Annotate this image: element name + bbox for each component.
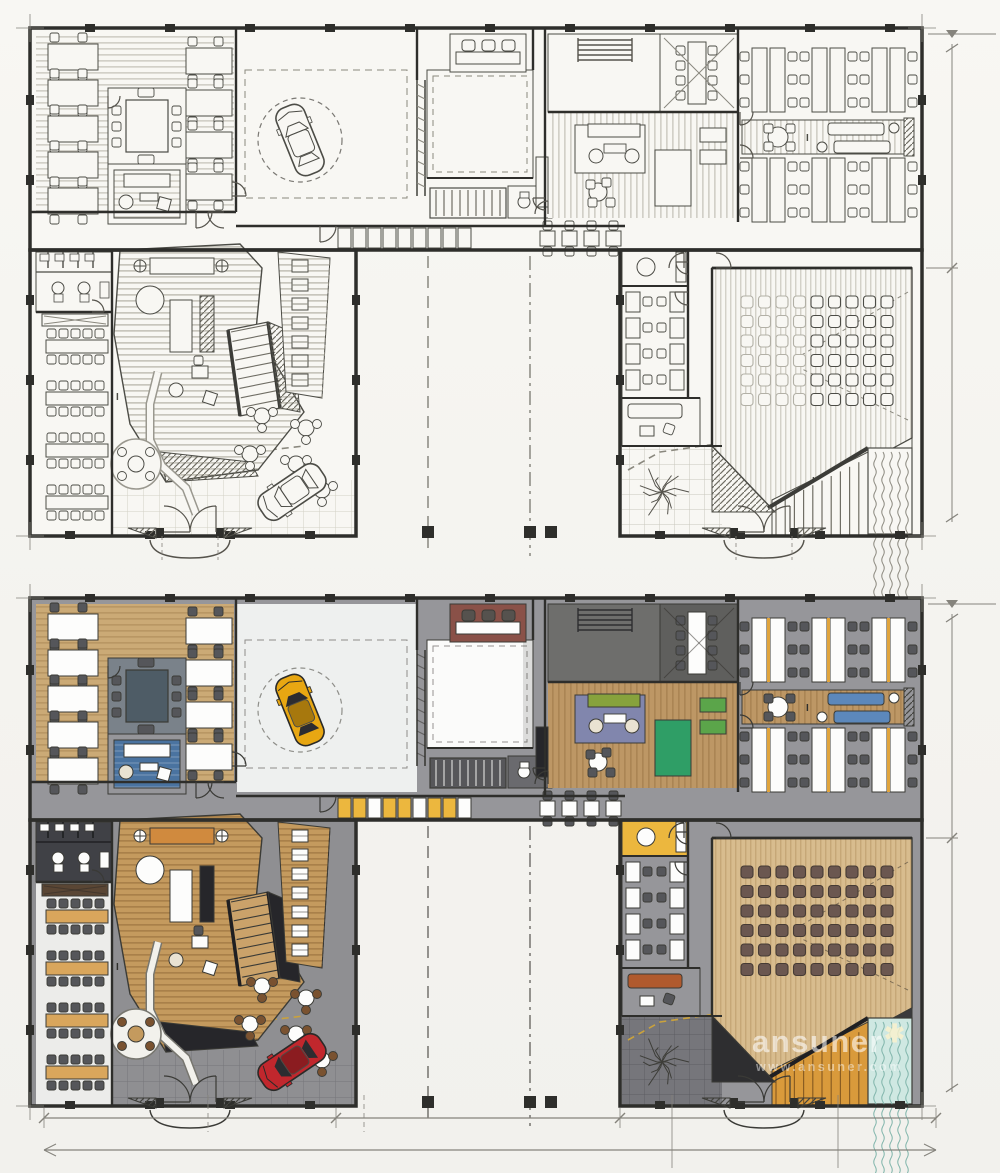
svg-text:I: I (116, 962, 119, 973)
floor-plan-poster: III III ansuner ✱ www.ansuner.com (0, 0, 1000, 1173)
sketch-rest-lounge (622, 398, 700, 446)
sketch-canteen: I (36, 312, 119, 536)
sketch-white-room (427, 70, 533, 178)
sketch-car-showroom (237, 34, 425, 222)
render-booth-seating (278, 822, 330, 968)
render-tea-lounge: I (742, 688, 914, 726)
sketch-tea-lounge: I (742, 118, 914, 156)
render-small-meeting-room (660, 604, 738, 682)
sketch-courtyard-garden (622, 444, 722, 536)
render-courtyard-garden (622, 1014, 722, 1106)
render-white-room (427, 640, 533, 748)
sketch-side-rooms (622, 250, 688, 398)
sketch-small-meeting-room (660, 34, 738, 112)
svg-text:I: I (806, 133, 809, 144)
render-canteen: I (36, 882, 119, 1106)
watermark-brand: ansuner (752, 1024, 883, 1059)
sketch-pantry (450, 34, 526, 72)
sketch-staff-lounge (108, 164, 186, 224)
render-staff-lounge (108, 734, 186, 794)
sketch-booth-seating (278, 252, 330, 398)
render-pantry (450, 604, 526, 642)
floor-plan-sheet: III III ansuner ✱ www.ansuner.com (0, 0, 1000, 1173)
svg-text:I: I (116, 392, 119, 403)
svg-text:I: I (806, 703, 809, 714)
watermark-url: www.ansuner.com (755, 1060, 903, 1074)
render-side-rooms (622, 820, 688, 968)
render-car-showroom (237, 604, 425, 792)
sketch-water-feature (868, 448, 912, 612)
render-rest-lounge (622, 968, 700, 1016)
rendered-floor-plan: III (0, 570, 926, 1173)
sketch-floor-plan: III (0, 0, 926, 612)
watermark-star-icon: ✱ (884, 1020, 906, 1048)
watermark: ansuner ✱ www.ansuner.com (752, 1020, 906, 1074)
